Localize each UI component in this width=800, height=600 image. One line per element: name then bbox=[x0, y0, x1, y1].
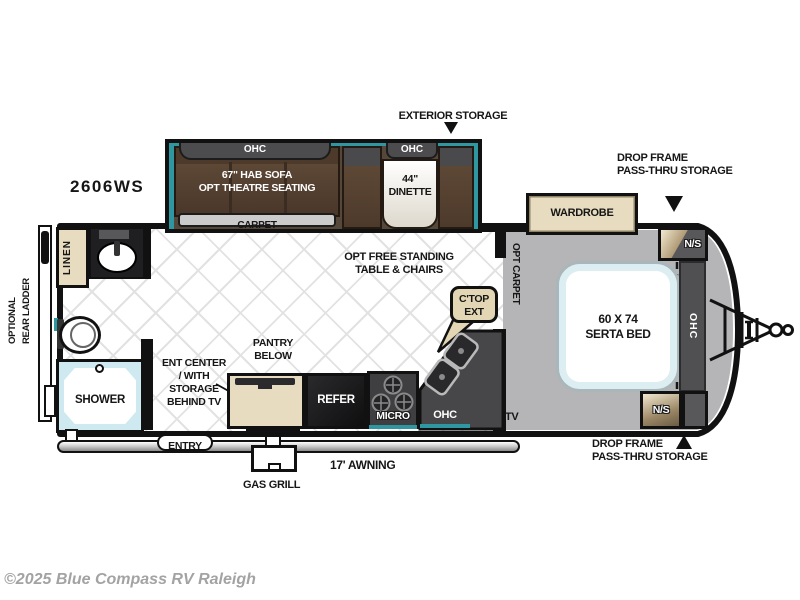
ent-center-cabinet bbox=[227, 373, 305, 429]
wardrobe-label: WARDROBE bbox=[551, 207, 614, 219]
tv-label: TV bbox=[505, 407, 518, 425]
linen-closet: LINEN bbox=[56, 227, 89, 288]
wardrobe-slideout: WARDROBE bbox=[526, 193, 638, 235]
kitchen-teal-accent bbox=[420, 424, 470, 428]
range-teal-accent bbox=[369, 425, 417, 429]
bedroom-ohc-label: OHC bbox=[686, 313, 699, 339]
bedroom-cabinet-dark bbox=[682, 391, 708, 429]
nightstand-bottom: N/S bbox=[640, 391, 682, 429]
main-slideout: OHC 67" HAB SOFA OPT THEATRE SEATING CAR… bbox=[165, 139, 482, 233]
sofa-ohc-cabinet: OHC bbox=[179, 143, 331, 160]
entry-door-label: ENTRY bbox=[157, 434, 213, 451]
dinette-table: 44" DINETTE bbox=[382, 159, 438, 229]
nightstand-top: N/S bbox=[658, 227, 708, 261]
ctop-line1: C'TOP bbox=[453, 293, 495, 306]
medicine-cabinet bbox=[99, 230, 129, 239]
rear-ladder-annotation: OPTIONAL REAR LADDER bbox=[6, 226, 34, 344]
dinette-label-line1: 44" bbox=[384, 173, 436, 186]
range-microwave: MICRO bbox=[367, 371, 419, 429]
bath-faucet-icon bbox=[114, 241, 120, 256]
linen-label: LINEN bbox=[62, 240, 73, 275]
shower-label: SHOWER bbox=[75, 394, 125, 406]
ns-bottom-label: N/S bbox=[653, 404, 670, 416]
micro-label: MICRO bbox=[376, 410, 410, 422]
bed-label-line1: 60 X 74 bbox=[559, 312, 677, 327]
dinette-ohc-cabinet: OHC bbox=[386, 143, 438, 159]
drop-frame-bottom-arrow-icon bbox=[676, 435, 692, 449]
dinette-label-line2: DINETTE bbox=[384, 186, 436, 199]
gas-grill-annotation: GAS GRILL bbox=[243, 475, 300, 493]
floorplan-canvas: OHC 67" HAB SOFA OPT THEATRE SEATING CAR… bbox=[0, 0, 800, 600]
exterior-storage-arrow-icon bbox=[444, 122, 458, 134]
sofa-label: 67" HAB SOFA OPT THEATRE SEATING bbox=[174, 169, 340, 195]
shower: SHOWER bbox=[56, 359, 144, 433]
shower-head-icon bbox=[95, 364, 104, 373]
ctop-line2: EXT bbox=[453, 306, 495, 319]
refer-label: REFER bbox=[317, 394, 354, 406]
ctop-ext-callout: C'TOP EXT bbox=[450, 286, 498, 323]
ns-top-label: N/S bbox=[684, 230, 701, 258]
awning-annotation: 17' AWNING bbox=[330, 456, 395, 474]
bed-label-line2: SERTA BED bbox=[559, 327, 677, 342]
wall-jog-bedroom bbox=[495, 228, 506, 258]
dinette-bench-left bbox=[342, 146, 382, 229]
free-standing-annotation: OPT FREE STANDING TABLE & CHAIRS bbox=[325, 251, 473, 277]
bed: 60 X 74 SERTA BED bbox=[556, 261, 680, 392]
dinette-bench-right bbox=[438, 146, 474, 229]
model-number: 2606WS bbox=[70, 177, 144, 197]
dinette-ohc-label: OHC bbox=[401, 144, 423, 155]
ent-center-annotation: ENT CENTER / WITH STORAGE BEHIND TV bbox=[157, 357, 231, 409]
gas-grill-icon bbox=[251, 445, 297, 472]
bedroom-front-ohc: OHC bbox=[679, 261, 706, 392]
watermark: ©2025 Blue Compass RV Raleigh bbox=[4, 571, 256, 589]
refrigerator: REFER bbox=[305, 373, 367, 429]
opt-carpet-label: OPT CARPET bbox=[506, 243, 524, 323]
tv-stand-icon bbox=[258, 385, 272, 389]
toilet-icon bbox=[57, 316, 101, 354]
tv-partition-wall bbox=[141, 339, 153, 430]
sofa-label-line2: OPT THEATRE SEATING bbox=[174, 182, 340, 195]
bath-vanity bbox=[89, 227, 145, 279]
tv-icon bbox=[235, 378, 295, 385]
drop-frame-top-annotation: DROP FRAME PASS-THRU STORAGE bbox=[617, 152, 733, 178]
carpet-label: CARPET bbox=[237, 220, 276, 231]
kitchen-ohc-label: OHC bbox=[424, 405, 466, 423]
carpet-strip: CARPET bbox=[178, 213, 336, 227]
sofa-label-line1: 67" HAB SOFA bbox=[174, 169, 340, 182]
bath-wall bbox=[145, 227, 151, 279]
pantry-annotation: PANTRY BELOW bbox=[240, 337, 306, 363]
drop-frame-top-arrow-icon bbox=[665, 196, 683, 212]
sofa-ohc-label: OHC bbox=[244, 144, 266, 155]
